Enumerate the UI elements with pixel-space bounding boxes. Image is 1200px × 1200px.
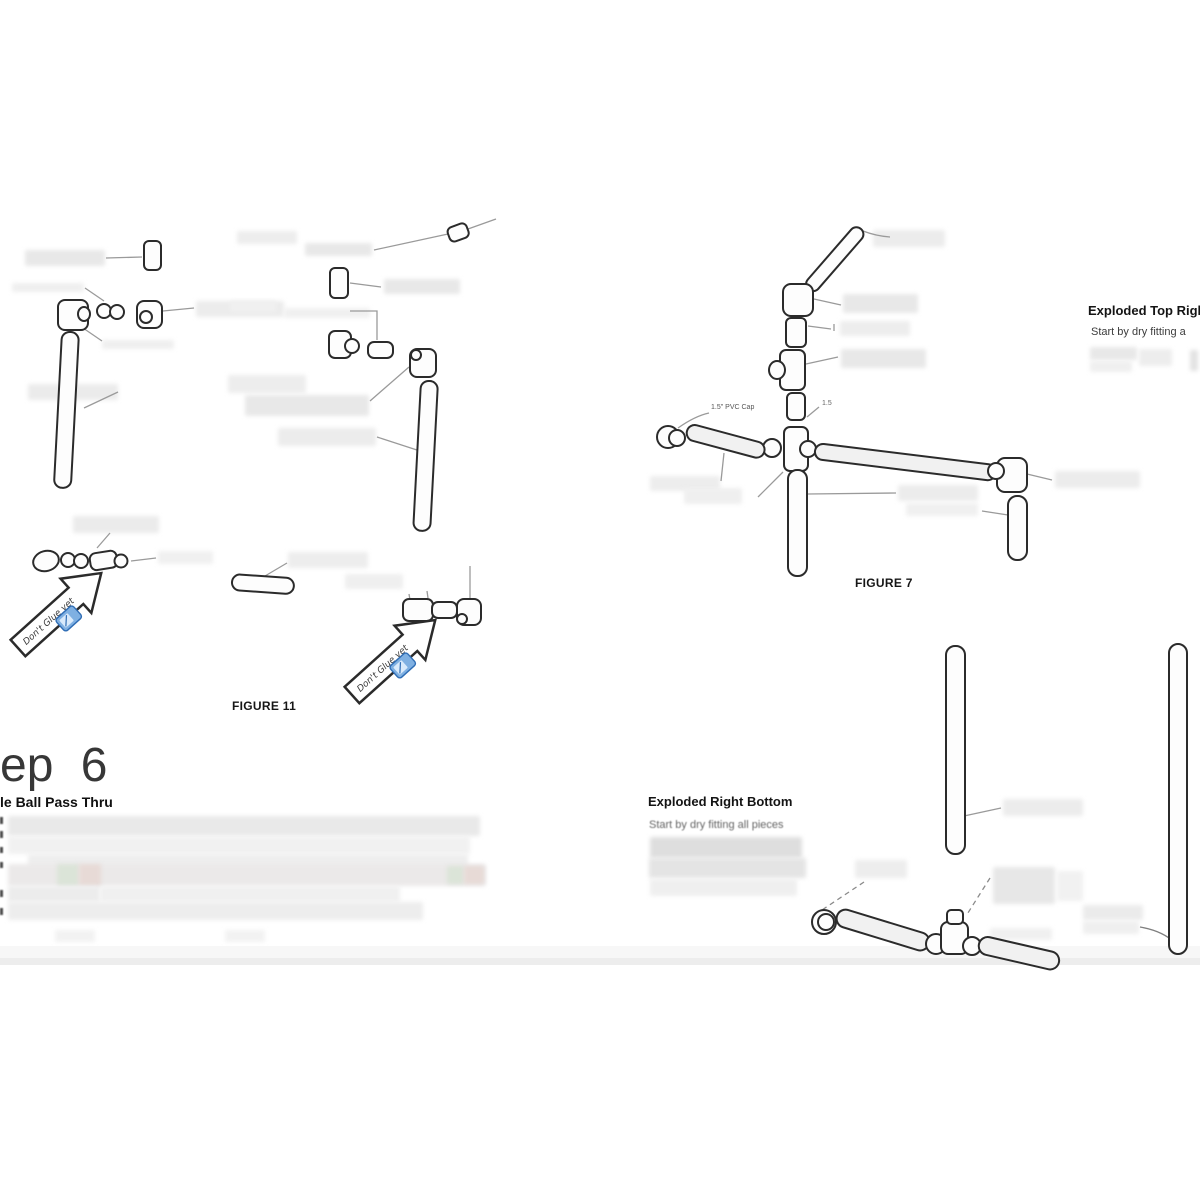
pvc-coupling bbox=[786, 318, 806, 347]
pvc-cap-callout: 1.5" PVC Cap bbox=[711, 404, 754, 411]
figure11-caption: FIGURE 11 bbox=[232, 700, 296, 713]
figure7-diagram bbox=[657, 224, 1027, 576]
pvc-coupling bbox=[432, 602, 457, 618]
pvc-pipe bbox=[834, 907, 931, 952]
elbow-socket bbox=[411, 350, 421, 360]
pvc-coupling bbox=[368, 342, 393, 358]
pvc-pipe bbox=[814, 443, 997, 481]
elbow-socket bbox=[140, 311, 152, 323]
pvc-pipe bbox=[1169, 644, 1187, 954]
elbow-socket bbox=[988, 463, 1004, 479]
exploded-top-right-intro: Start by dry fitting a bbox=[1091, 327, 1186, 339]
pvc-pipe bbox=[788, 470, 807, 576]
tee-socket bbox=[345, 339, 359, 353]
tee-socket bbox=[769, 361, 785, 379]
dont-glue-arrow: Don't Glue yet bbox=[337, 603, 451, 712]
elbow-socket bbox=[457, 614, 467, 624]
pvc-pipe bbox=[803, 224, 866, 294]
pvc-cap bbox=[818, 914, 834, 930]
pvc-tee bbox=[403, 599, 433, 621]
pvc-pipe bbox=[231, 574, 294, 594]
figure11-diagram bbox=[31, 222, 481, 625]
diagram-layer: Don't Glue yet Don't Glue yet bbox=[0, 0, 1200, 1200]
step-heading: ep 6 bbox=[0, 741, 107, 791]
pvc-elbow bbox=[783, 284, 813, 316]
step-subheading: le Ball Pass Thru bbox=[0, 795, 113, 810]
cross-socket bbox=[763, 439, 781, 457]
cross-socket bbox=[800, 441, 816, 457]
pvc-elbow bbox=[31, 548, 61, 574]
pvc-coupling bbox=[144, 241, 161, 270]
dont-glue-arrow: Don't Glue yet bbox=[3, 556, 117, 665]
pvc-coupling bbox=[74, 554, 88, 568]
pvc-pipe bbox=[54, 332, 79, 489]
pvc-pipe bbox=[946, 646, 965, 854]
manual-page: Don't Glue yet Don't Glue yet ep 6 le Ba… bbox=[0, 0, 1200, 1200]
tee-top-socket bbox=[947, 910, 963, 924]
pvc-cap bbox=[669, 430, 685, 446]
elbow-socket bbox=[78, 307, 90, 321]
pvc-coupling bbox=[115, 555, 128, 568]
pvc-pipe bbox=[685, 423, 766, 459]
pvc-cap bbox=[446, 222, 470, 243]
figure7-caption: FIGURE 7 bbox=[855, 577, 913, 590]
pvc-coupling bbox=[330, 268, 348, 298]
pvc-pipe bbox=[413, 381, 438, 532]
pipe-size-callout: 1.5 bbox=[822, 400, 832, 407]
pvc-coupling bbox=[110, 305, 124, 319]
pvc-pipe bbox=[1008, 496, 1027, 560]
exploded-right-bottom-heading: Exploded Right Bottom bbox=[648, 795, 792, 809]
bottom-right-diagram bbox=[812, 644, 1187, 971]
exploded-top-right-heading: Exploded Top Right bbox=[1088, 304, 1200, 318]
pvc-coupling bbox=[61, 553, 75, 567]
exploded-right-bottom-intro: Start by dry fitting all pieces bbox=[649, 820, 784, 832]
pvc-coupling bbox=[97, 304, 111, 318]
pvc-coupling bbox=[787, 393, 805, 420]
pvc-pipe bbox=[977, 935, 1061, 971]
